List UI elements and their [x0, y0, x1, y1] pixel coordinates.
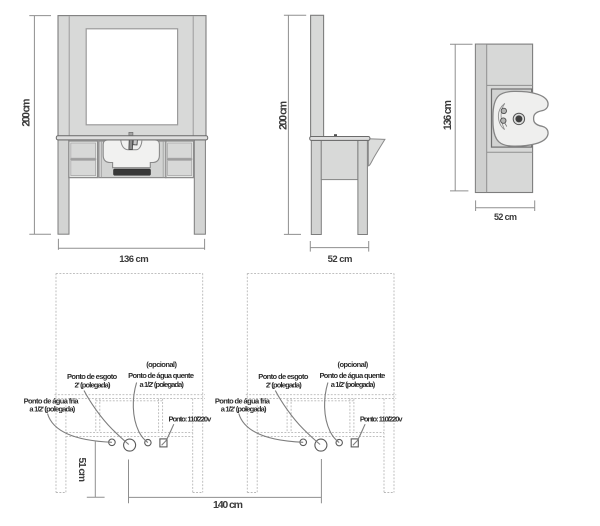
svg-text:136 cm: 136 cm: [442, 100, 454, 130]
svg-text:52 cm: 52 cm: [328, 254, 353, 265]
svg-text:51 cm: 51 cm: [76, 458, 87, 483]
svg-text:200 cm: 200 cm: [277, 101, 289, 130]
svg-text:52 cm: 52 cm: [494, 212, 517, 222]
svg-text:200 cm: 200 cm: [21, 99, 33, 127]
svg-text:136 cm: 136 cm: [119, 254, 149, 265]
svg-text:140 cm: 140 cm: [213, 499, 243, 511]
